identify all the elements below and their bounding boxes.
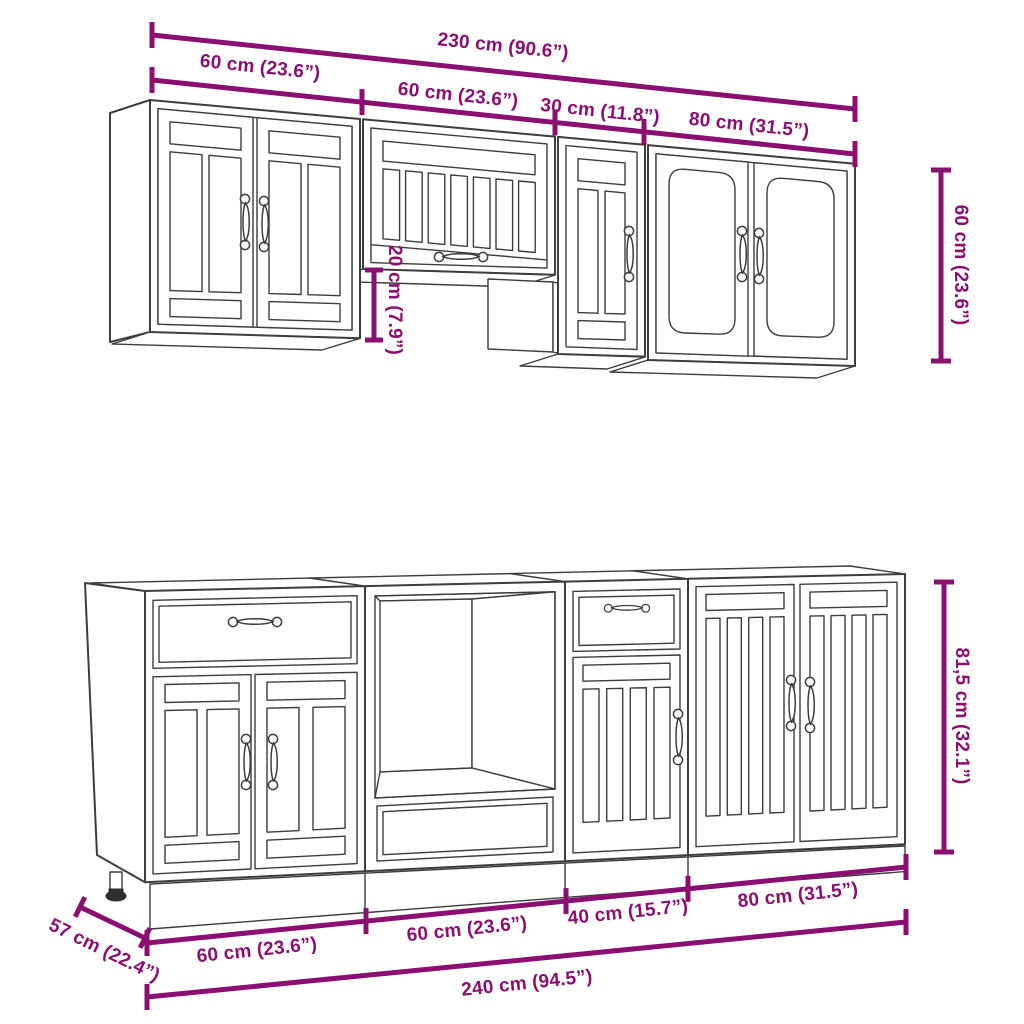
dim-label-wall-60-left: 60 cm (23.6”) — [199, 51, 321, 85]
door-slat — [607, 688, 623, 821]
leg-foot-collar — [109, 889, 123, 895]
door-slat — [170, 152, 202, 292]
door-slat — [519, 181, 536, 253]
door-slat — [383, 169, 400, 241]
door-slat — [654, 687, 670, 819]
door-slat — [473, 177, 490, 249]
door-slat — [313, 707, 345, 830]
product-dimension-diagram: 230 cm (90.6”) 60 cm (23.6”) 60 cm (23.6… — [0, 0, 1024, 1024]
door-slat — [496, 179, 513, 251]
door-top-panel — [267, 681, 345, 701]
door-slat — [428, 173, 445, 245]
dim-wall-height: 60 cm (23.6”) — [931, 170, 971, 361]
door-slat — [578, 189, 598, 314]
door-slat — [583, 689, 599, 823]
door-slat — [207, 709, 239, 835]
dim-label-base-height: 81,5 cm (32.1”) — [951, 647, 972, 784]
door-slat — [873, 614, 887, 808]
door-slat — [209, 155, 241, 292]
door-slat — [831, 615, 845, 810]
door-slat — [165, 710, 197, 838]
door-top-panel — [583, 663, 670, 681]
bridge-door-slats — [383, 169, 535, 253]
door-top-panel — [165, 683, 239, 703]
door-slat — [770, 617, 784, 813]
door-bottom-panel — [269, 302, 340, 322]
diagram-canvas: 230 cm (90.6”) 60 cm (23.6”) 60 cm (23.6… — [0, 0, 1024, 1024]
cabinet-side — [85, 583, 145, 882]
door-slat — [308, 164, 340, 295]
base-cabinet-row — [85, 566, 905, 929]
adjustable-leg — [106, 872, 126, 901]
door-bottom-panel — [267, 836, 345, 858]
door-slat — [451, 175, 468, 247]
dim-base-height: 81,5 cm (32.1”) — [934, 582, 972, 852]
dim-label-bridge-drop: 20 cm (7.9”) — [384, 245, 405, 355]
hood-box-front — [488, 279, 553, 352]
door-bottom-panel — [578, 321, 625, 340]
cavity-back-wall — [380, 599, 472, 772]
door-top-panel — [810, 590, 887, 608]
wall-cabinet-bridge-60 — [325, 119, 596, 362]
door-top-panel — [578, 159, 625, 185]
door-slat — [727, 618, 741, 815]
dim-label-wall-height: 60 cm (23.6”) — [950, 205, 971, 326]
dim-label-wall-total: 230 cm (90.6”) — [436, 29, 569, 64]
wall-cabinet-80 — [610, 145, 855, 378]
wall-cabinet-60-left — [110, 100, 360, 350]
cabinet-side — [110, 100, 150, 342]
door-slat — [852, 615, 866, 809]
door-slat — [749, 617, 763, 814]
door-bottom-panel — [165, 842, 239, 864]
cavity-right-wall — [472, 592, 555, 789]
door-slat — [605, 191, 625, 314]
dim-label-base-60-mid: 60 cm (23.6”) — [406, 913, 528, 947]
door-slat — [406, 171, 423, 243]
door-slat — [269, 161, 301, 295]
door-top-panel — [706, 593, 784, 611]
door-slat — [706, 618, 720, 816]
door-slat — [630, 688, 646, 820]
drawer-front — [153, 596, 357, 669]
base-cabinet-60-drawer-doors — [85, 578, 365, 882]
door-bottom-panel — [170, 299, 241, 319]
drawer-front — [573, 589, 680, 651]
dim-base-depth: 57 cm (22.4”) — [45, 897, 163, 986]
dim-label-base-total: 240 cm (94.5”) — [460, 966, 593, 1001]
bottom-drawer-front — [377, 797, 553, 861]
